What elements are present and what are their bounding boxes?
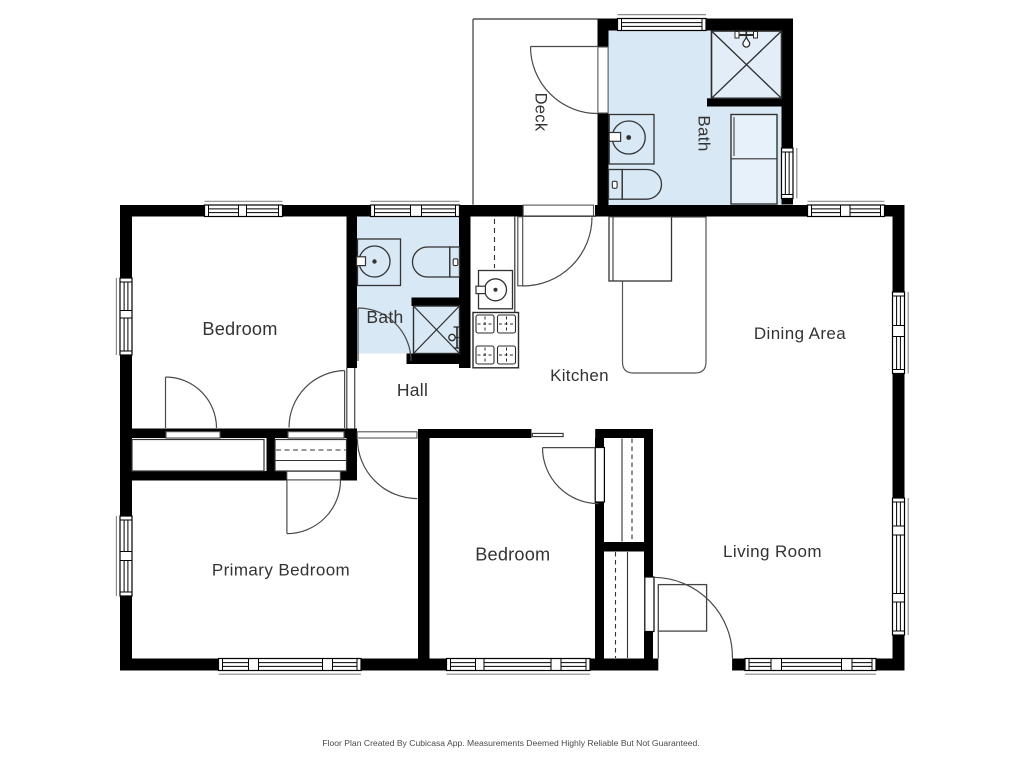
svg-text:Living Room: Living Room bbox=[723, 542, 822, 561]
svg-text:Bath: Bath bbox=[366, 307, 403, 327]
svg-text:Floor Plan Created By Cubicasa: Floor Plan Created By Cubicasa App. Meas… bbox=[322, 738, 699, 748]
svg-text:Kitchen: Kitchen bbox=[550, 366, 609, 385]
svg-text:Dining Area: Dining Area bbox=[754, 324, 846, 343]
svg-text:Bedroom: Bedroom bbox=[202, 319, 277, 339]
svg-text:Deck: Deck bbox=[532, 93, 550, 132]
svg-text:Bedroom: Bedroom bbox=[475, 544, 550, 564]
svg-text:Hall: Hall bbox=[397, 380, 428, 400]
svg-text:Bath: Bath bbox=[695, 115, 714, 151]
svg-text:Primary Bedroom: Primary Bedroom bbox=[212, 561, 350, 580]
